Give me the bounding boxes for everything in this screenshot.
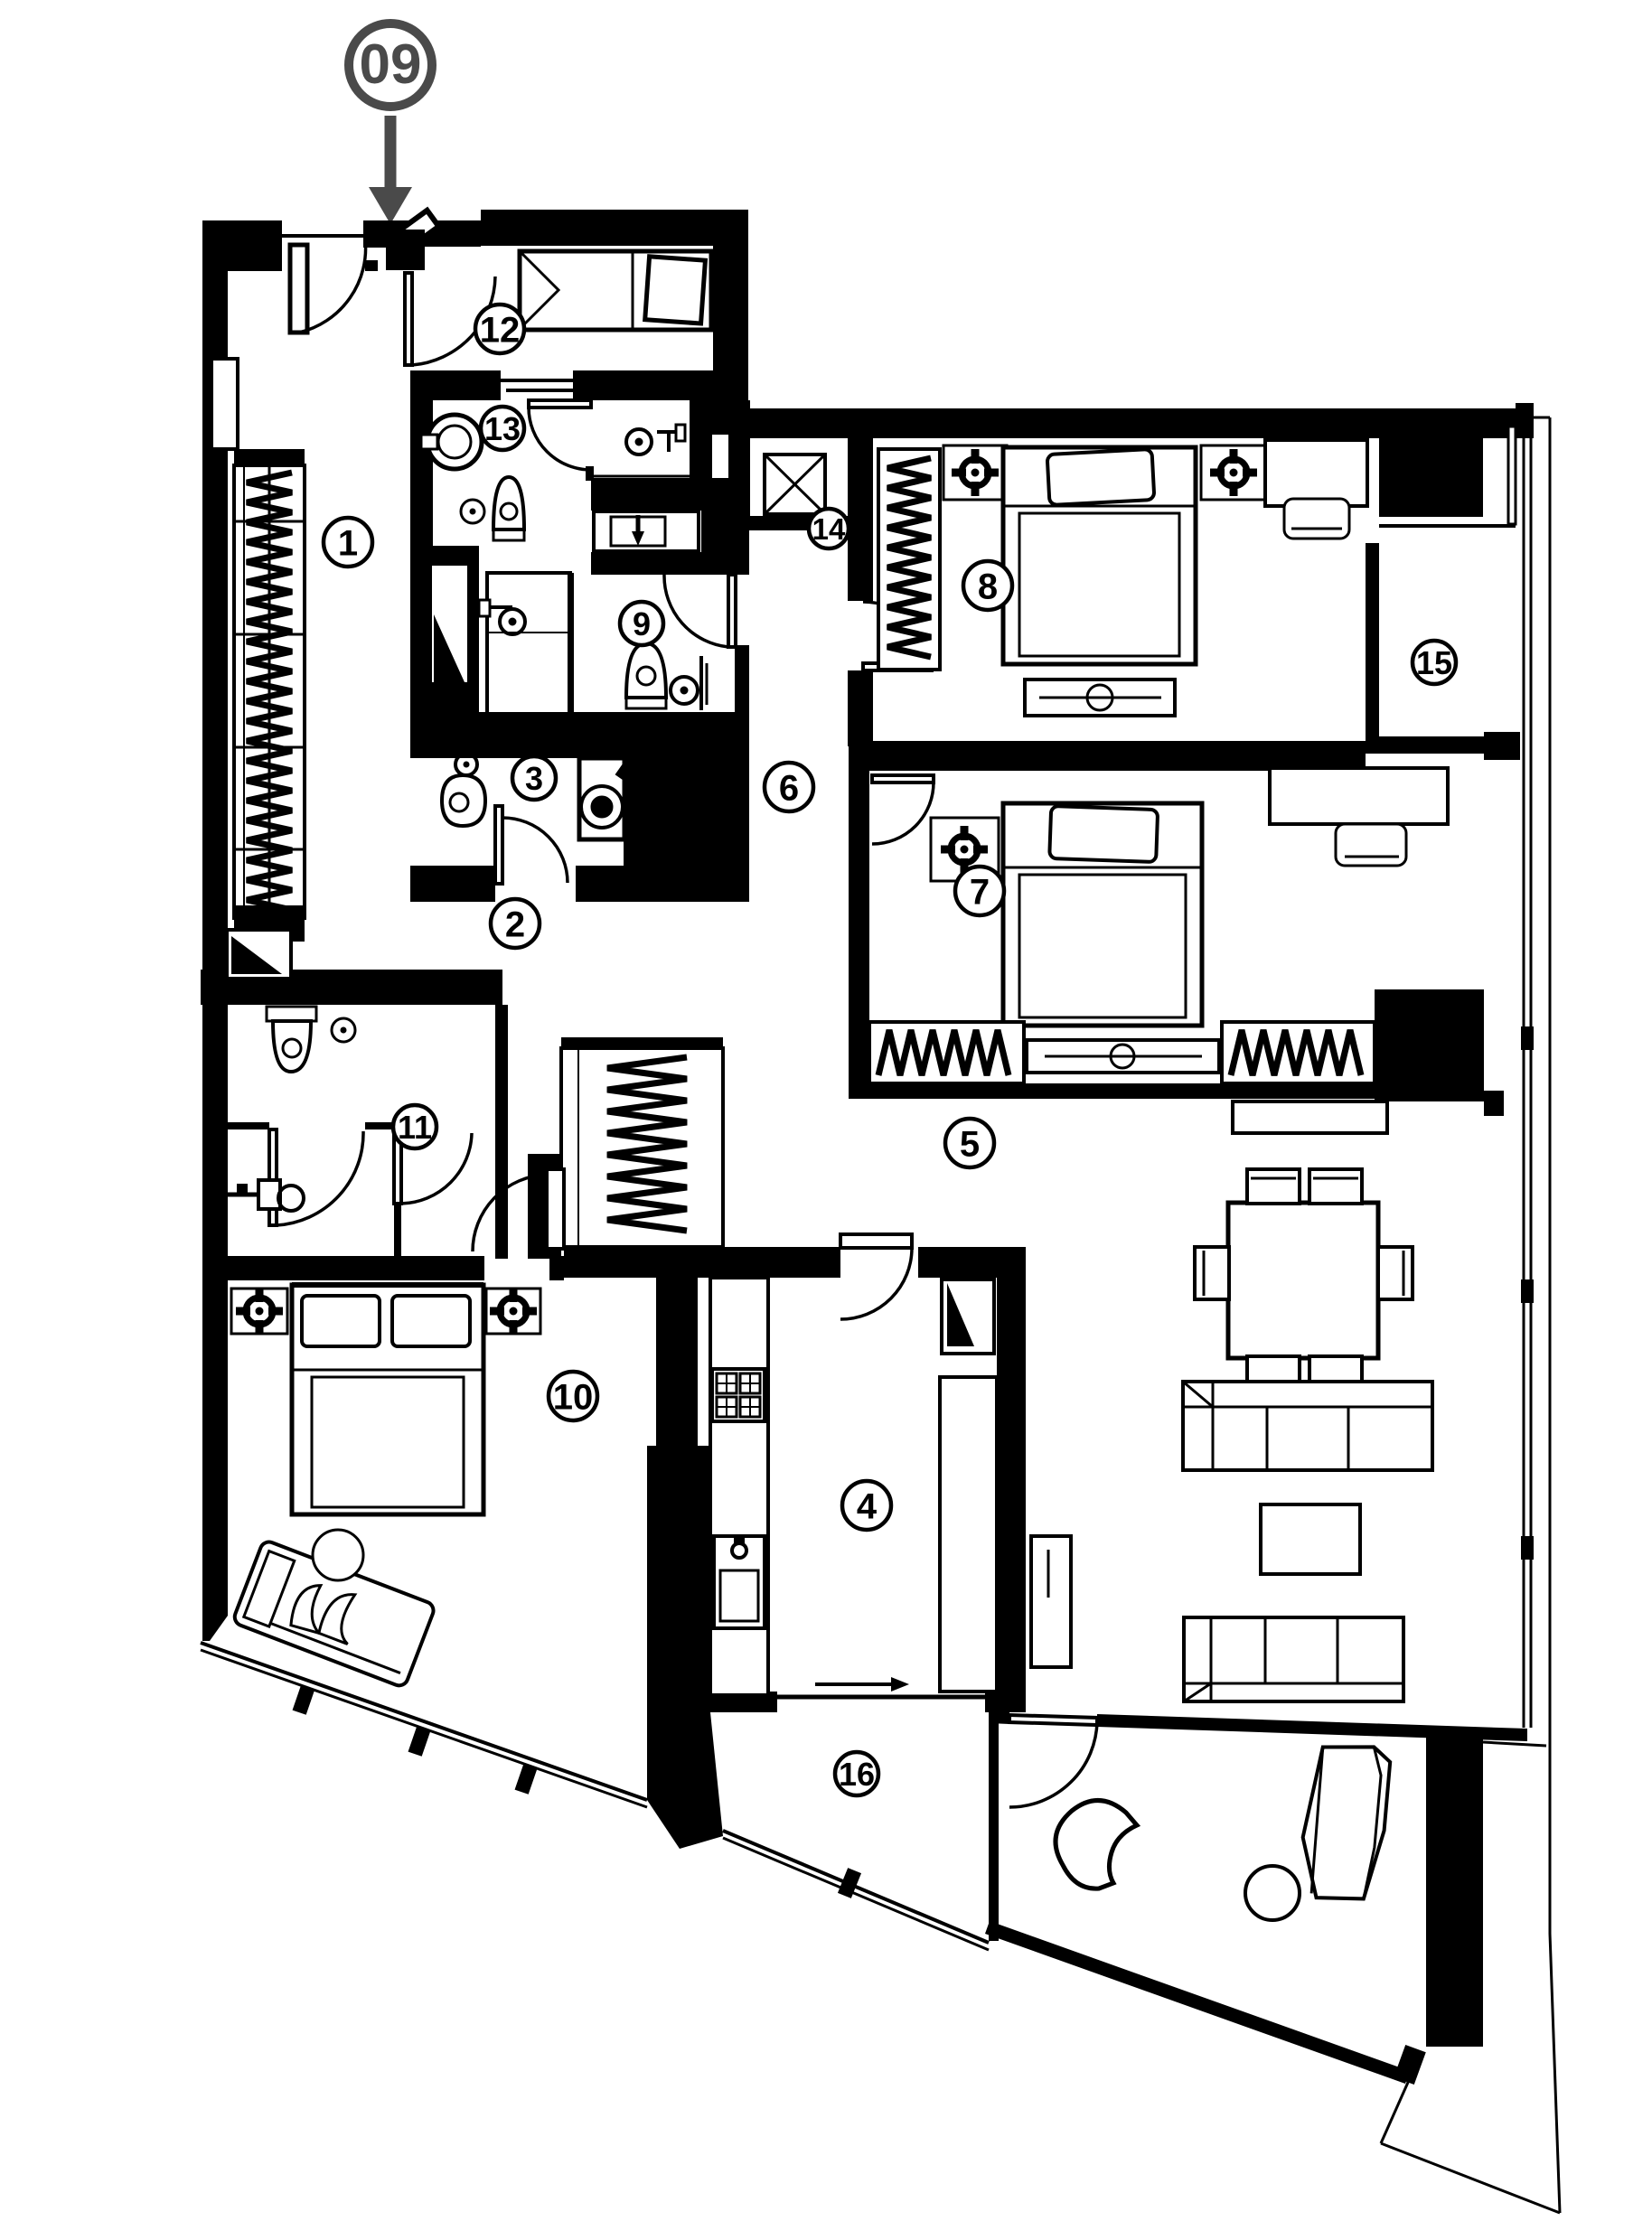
- svg-text:8: 8: [978, 567, 998, 606]
- svg-text:11: 11: [398, 1109, 432, 1146]
- svg-text:6: 6: [779, 768, 799, 808]
- svg-text:2: 2: [505, 904, 525, 944]
- svg-text:7: 7: [970, 872, 990, 912]
- svg-text:10: 10: [553, 1377, 594, 1417]
- svg-text:3: 3: [525, 760, 543, 797]
- svg-text:1: 1: [338, 523, 358, 563]
- svg-text:9: 9: [633, 605, 651, 642]
- svg-text:13: 13: [484, 410, 521, 447]
- svg-text:09: 09: [360, 33, 422, 96]
- svg-text:12: 12: [480, 310, 521, 350]
- svg-text:4: 4: [857, 1486, 878, 1526]
- svg-text:14: 14: [812, 512, 846, 546]
- svg-text:5: 5: [960, 1124, 980, 1164]
- svg-text:15: 15: [1416, 644, 1452, 681]
- svg-text:16: 16: [839, 1756, 875, 1793]
